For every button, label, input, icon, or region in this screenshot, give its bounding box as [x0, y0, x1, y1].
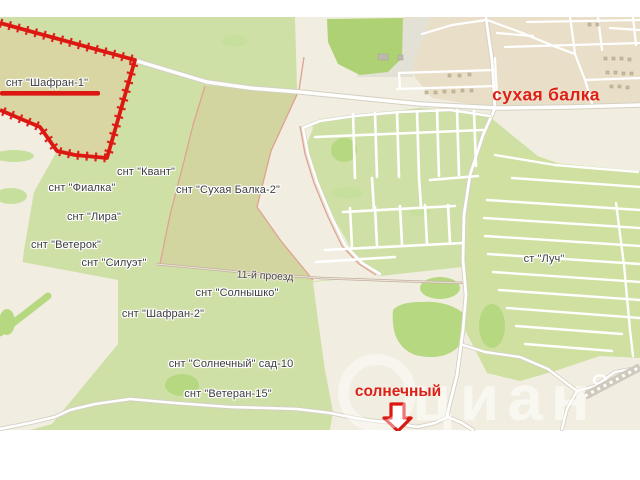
settlement-label-shafran-2: снт "Шафран-2"	[122, 308, 204, 320]
settlement-label-lira: снт "Лира"	[67, 211, 121, 223]
settlement-label-veterok: снт "Ветерок"	[31, 239, 101, 251]
settlement-label-solnyshko: снт "Солнышко"	[196, 287, 279, 299]
bottom-margin	[0, 431, 640, 480]
settlement-label-siluet: снт "Силуэт"	[82, 257, 147, 269]
settlement-label-suhaya-balka-2: снт "Сухая Балка-2"	[176, 184, 280, 196]
highlight-underline	[0, 91, 100, 96]
settlement-label-fialka: снт "Фиалка"	[49, 182, 116, 194]
highlight-label-suhaya-balka: сухая балка	[492, 85, 600, 106]
settlement-label-solnechny-sad: снт "Солнечный" сад-10	[169, 358, 294, 370]
map-screenshot: циан снт "Шафран-1" снт "Квант" снт "Фиа…	[0, 0, 640, 480]
settlement-label-luch: ст "Луч"	[524, 253, 565, 265]
settlement-label-kvant: снт "Квант"	[117, 166, 175, 178]
settlement-label-shafran-1: снт "Шафран-1"	[6, 77, 88, 89]
top-margin	[0, 0, 640, 17]
settlement-label-veteran-15: снт "Ветеран-15"	[184, 388, 271, 400]
highlight-label-solnechny: солнечный	[355, 383, 441, 401]
